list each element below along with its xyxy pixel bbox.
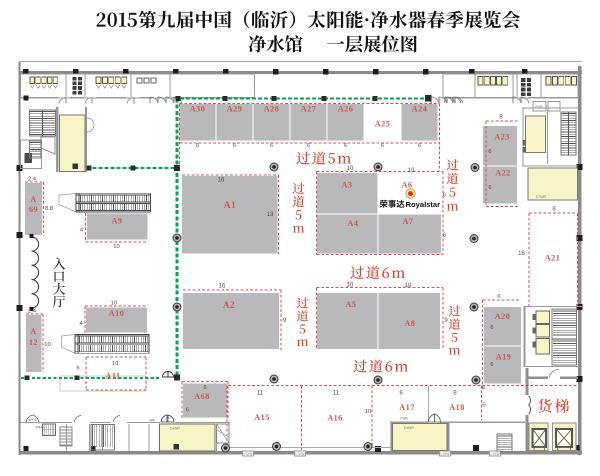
svg-text:8: 8 bbox=[399, 391, 403, 397]
svg-text:69: 69 bbox=[29, 205, 38, 214]
svg-text:13: 13 bbox=[267, 212, 274, 218]
svg-text:8: 8 bbox=[552, 207, 556, 213]
svg-text:L7XW: L7XW bbox=[296, 452, 306, 456]
svg-text:A16: A16 bbox=[327, 414, 343, 423]
svg-text:A: A bbox=[30, 195, 36, 204]
svg-text:6: 6 bbox=[381, 143, 384, 149]
svg-text:A68: A68 bbox=[194, 392, 210, 401]
svg-text:A19: A19 bbox=[496, 353, 512, 362]
svg-text:A26: A26 bbox=[338, 105, 354, 114]
svg-text:WMG: WMG bbox=[36, 426, 45, 430]
svg-text:A11: A11 bbox=[105, 372, 120, 381]
svg-text:16: 16 bbox=[219, 284, 226, 290]
svg-text:D7WR: D7WR bbox=[536, 195, 547, 199]
svg-text:6: 6 bbox=[488, 149, 491, 155]
svg-text:DxWR: DxWR bbox=[170, 427, 180, 431]
svg-text:A20: A20 bbox=[495, 312, 511, 321]
svg-text:6: 6 bbox=[76, 366, 79, 372]
svg-text:9: 9 bbox=[283, 318, 287, 324]
svg-text:A24: A24 bbox=[412, 105, 428, 114]
svg-text:A25: A25 bbox=[375, 120, 391, 129]
svg-text:A: A bbox=[30, 327, 36, 336]
svg-text:6: 6 bbox=[497, 294, 500, 300]
svg-text:8: 8 bbox=[453, 391, 457, 397]
svg-text:L7XW: L7XW bbox=[491, 452, 501, 456]
svg-text:A18: A18 bbox=[449, 403, 465, 412]
svg-text:A1: A1 bbox=[224, 201, 237, 211]
svg-text:6: 6 bbox=[344, 143, 347, 149]
svg-text:A21: A21 bbox=[545, 254, 561, 263]
svg-text:A9: A9 bbox=[111, 217, 122, 226]
svg-text:9: 9 bbox=[444, 318, 448, 324]
svg-text:6: 6 bbox=[196, 143, 199, 149]
svg-text:6: 6 bbox=[443, 233, 446, 239]
svg-text:10: 10 bbox=[347, 283, 354, 289]
svg-text:6: 6 bbox=[270, 143, 273, 149]
svg-text:A28: A28 bbox=[264, 105, 280, 114]
svg-text:L7XW: L7XW bbox=[441, 452, 451, 456]
svg-text:6: 6 bbox=[203, 385, 206, 391]
svg-text:8.8: 8.8 bbox=[45, 206, 53, 212]
svg-text:10: 10 bbox=[112, 361, 118, 367]
svg-text:6: 6 bbox=[490, 325, 493, 331]
svg-text:10: 10 bbox=[408, 168, 415, 174]
svg-text:6: 6 bbox=[443, 193, 446, 199]
svg-text:10: 10 bbox=[347, 166, 354, 172]
svg-text:A15: A15 bbox=[254, 413, 270, 422]
svg-text:6: 6 bbox=[233, 143, 236, 149]
svg-text:A5: A5 bbox=[345, 300, 356, 309]
svg-text:A10: A10 bbox=[109, 309, 125, 318]
svg-text:10: 10 bbox=[44, 342, 50, 348]
svg-text:A6: A6 bbox=[401, 181, 412, 190]
svg-text:A3: A3 bbox=[341, 181, 352, 190]
svg-text:A8: A8 bbox=[404, 319, 415, 328]
svg-text:10: 10 bbox=[405, 283, 412, 289]
svg-text:16: 16 bbox=[518, 251, 525, 257]
svg-text:10: 10 bbox=[113, 244, 119, 250]
svg-text:A22: A22 bbox=[495, 169, 511, 178]
svg-text:6: 6 bbox=[482, 403, 485, 409]
svg-text:8: 8 bbox=[499, 115, 503, 121]
svg-text:6: 6 bbox=[186, 408, 189, 414]
svg-text:A30: A30 bbox=[190, 105, 206, 114]
svg-text:10: 10 bbox=[111, 301, 117, 307]
svg-text:11: 11 bbox=[257, 391, 264, 397]
svg-text:DxWR: DxWR bbox=[404, 426, 414, 430]
svg-text:6: 6 bbox=[307, 143, 310, 149]
svg-text:6: 6 bbox=[418, 143, 421, 149]
svg-text:A7: A7 bbox=[402, 217, 413, 226]
svg-text:4: 4 bbox=[79, 321, 83, 327]
svg-text:FWB: FWB bbox=[400, 417, 408, 421]
svg-text:WB: WB bbox=[149, 419, 155, 423]
svg-text:A29: A29 bbox=[227, 105, 243, 114]
svg-text:2.4: 2.4 bbox=[28, 309, 37, 315]
svg-text:11: 11 bbox=[333, 391, 340, 397]
svg-text:6: 6 bbox=[488, 185, 491, 191]
svg-text:A17: A17 bbox=[399, 403, 415, 412]
svg-text:12: 12 bbox=[29, 338, 38, 347]
svg-text:L7XW: L7XW bbox=[244, 452, 254, 456]
svg-text:A23: A23 bbox=[494, 133, 510, 142]
svg-text:6: 6 bbox=[490, 362, 493, 368]
svg-text:2.4: 2.4 bbox=[28, 177, 37, 183]
svg-text:10: 10 bbox=[365, 409, 371, 415]
svg-text:WYG: WYG bbox=[29, 418, 37, 422]
svg-text:A2: A2 bbox=[223, 300, 235, 310]
svg-text:A4: A4 bbox=[347, 219, 358, 228]
svg-text:4: 4 bbox=[80, 228, 84, 234]
svg-text:16: 16 bbox=[218, 178, 225, 184]
svg-text:Royalstar: Royalstar bbox=[406, 200, 441, 209]
svg-text:A27: A27 bbox=[301, 105, 317, 114]
